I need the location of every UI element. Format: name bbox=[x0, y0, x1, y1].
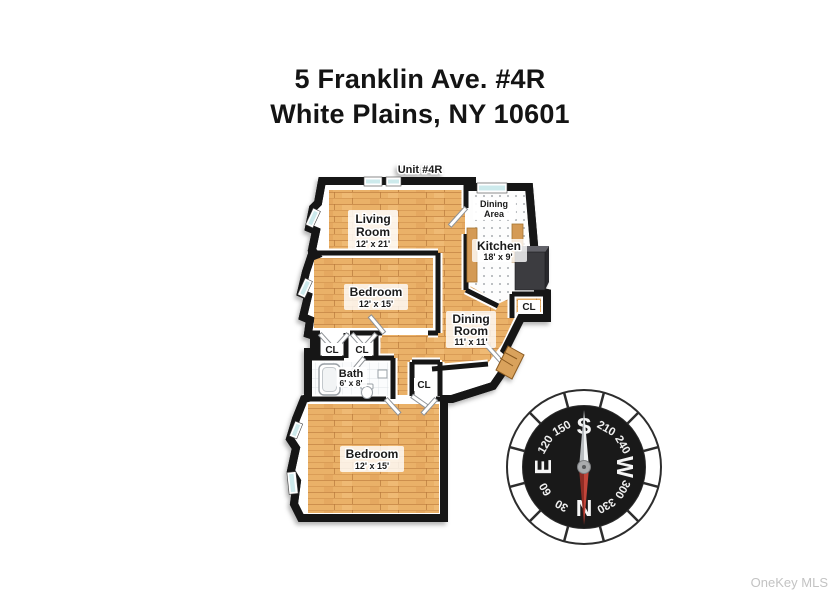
mls-watermark: OneKey MLS bbox=[751, 575, 828, 590]
living-room-label: Living bbox=[355, 212, 390, 226]
kitchen-label: Kitchen bbox=[477, 239, 521, 253]
sink-icon bbox=[378, 370, 387, 378]
kitchen-dims: 18' x 9' bbox=[483, 252, 512, 262]
compass-east-label: E bbox=[530, 459, 556, 474]
dining-room-dims: 11' x 11' bbox=[454, 337, 487, 347]
closet-label: CL bbox=[355, 345, 368, 356]
floorplan-image: Unit #4R Living Room 12' x 21' Dining Ar… bbox=[0, 0, 840, 600]
bedroom2-dims: 12' x 15' bbox=[355, 461, 389, 471]
window-icon bbox=[287, 472, 298, 495]
dining-room-label: Room bbox=[454, 324, 488, 338]
window-icon bbox=[386, 177, 401, 186]
page: 5 Franklin Ave. #4R White Plains, NY 106… bbox=[0, 0, 840, 600]
bedroom1-label: Bedroom bbox=[350, 285, 403, 299]
unit-label: Unit #4R bbox=[398, 164, 443, 176]
dining-area-label: Area bbox=[484, 209, 505, 219]
living-room-label: Room bbox=[356, 225, 390, 239]
dining-area-label: Dining bbox=[480, 199, 508, 209]
living-room-dims: 12' x 21' bbox=[356, 239, 390, 249]
bedroom1-dims: 12' x 15' bbox=[359, 299, 393, 309]
window-icon bbox=[364, 177, 382, 186]
compass-rose: S 210 240 W 300 330 N 30 60 E 120 150 bbox=[507, 390, 661, 544]
window-icon bbox=[477, 183, 507, 193]
bath-dims: 6' x 8' bbox=[340, 378, 363, 388]
closet-label: CL bbox=[417, 380, 430, 391]
closet-label: CL bbox=[325, 345, 338, 356]
bedroom2-label: Bedroom bbox=[346, 447, 399, 461]
closet-label: CL bbox=[522, 302, 535, 313]
compass-west-label: W bbox=[612, 456, 638, 478]
